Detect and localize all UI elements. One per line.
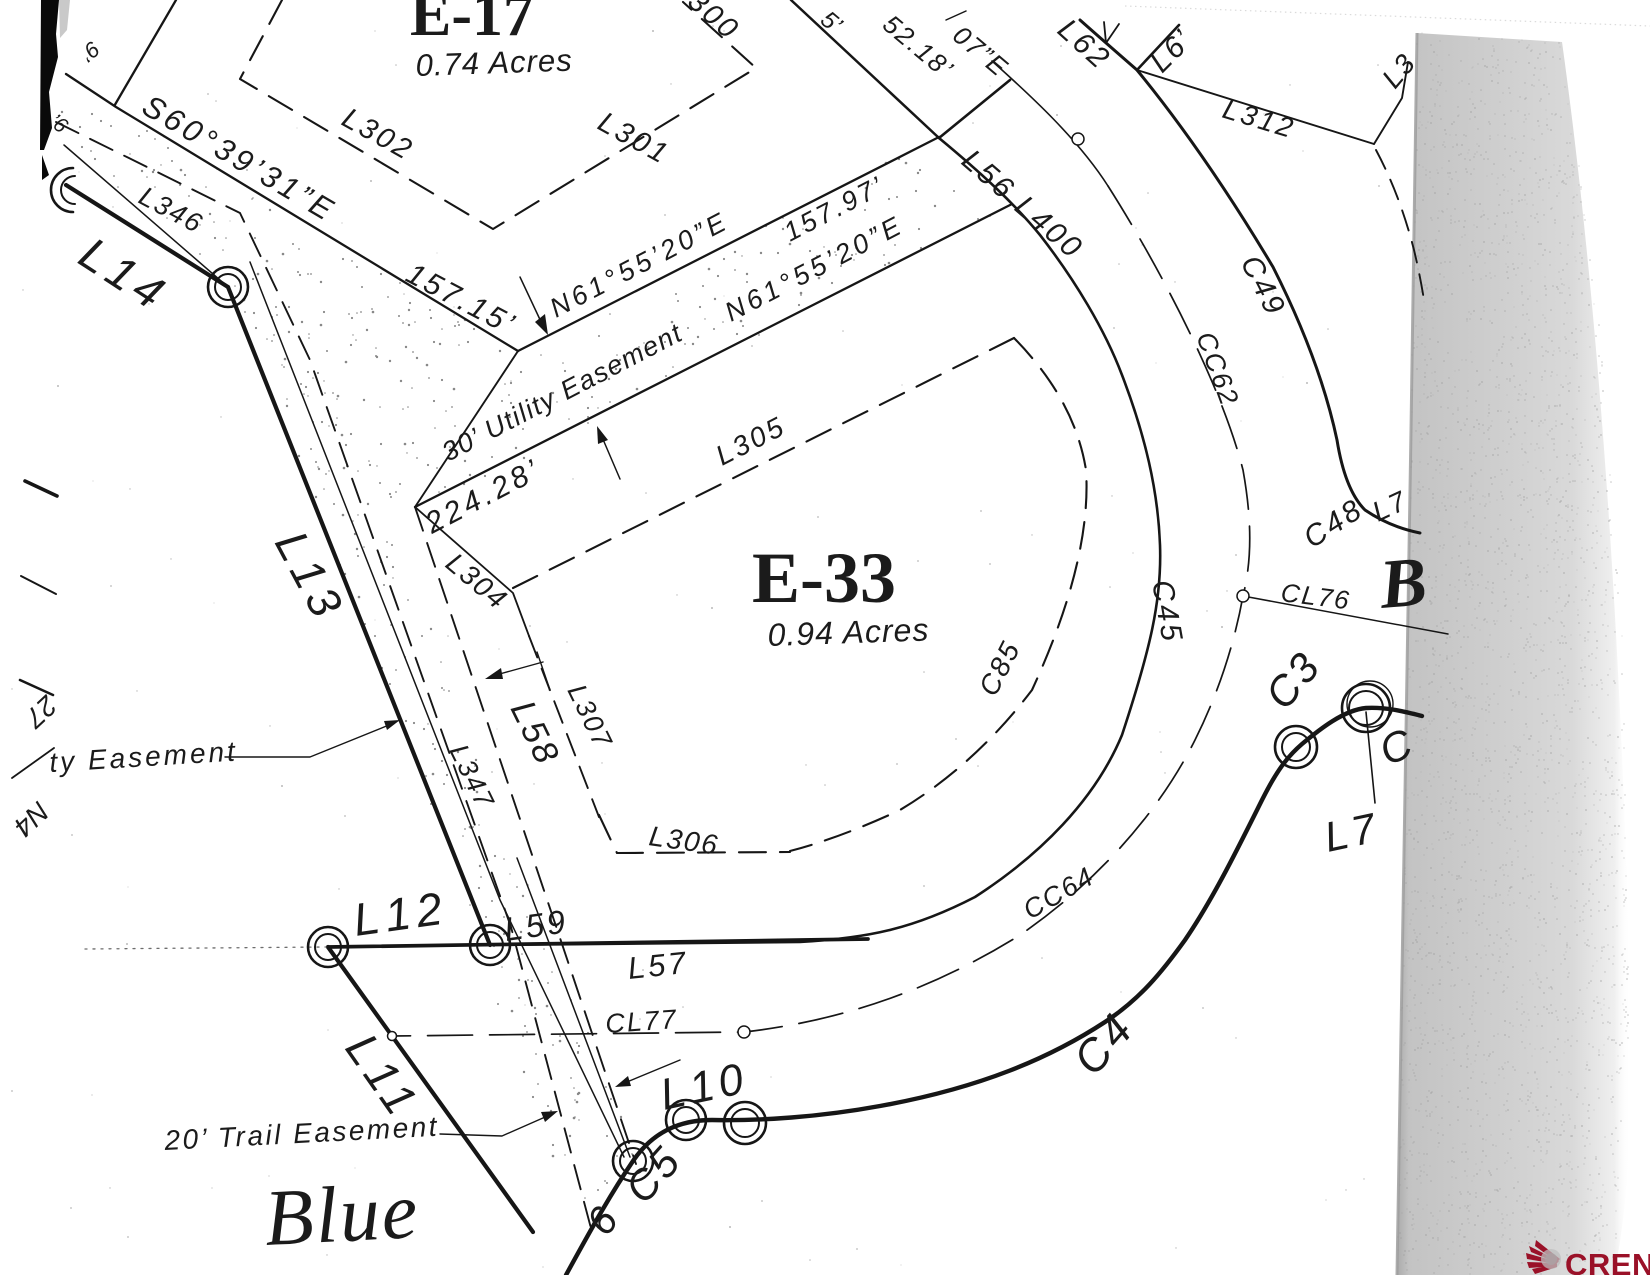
svg-text:L306: L306	[647, 820, 721, 860]
svg-text:CC64: CC64	[1018, 861, 1100, 925]
svg-text:300: 300	[681, 0, 745, 47]
svg-text:224.28’: 224.28’	[419, 453, 547, 541]
svg-text:L7: L7	[1320, 803, 1383, 860]
svg-text:L312: L312	[1219, 93, 1299, 144]
svg-text:27: 27	[18, 689, 64, 735]
svg-text:157.15’: 157.15’	[401, 257, 522, 342]
svg-text:0.94 Acres: 0.94 Acres	[767, 611, 930, 653]
svg-text:30’ Utility Easement: 30’ Utility Easement	[437, 317, 688, 467]
svg-text:C85: C85	[973, 636, 1027, 701]
svg-text:N4: N4	[8, 796, 55, 843]
svg-text:C4: C4	[1063, 1002, 1144, 1085]
svg-text:9’: 9’	[75, 36, 105, 67]
svg-text:C3: C3	[1256, 642, 1330, 718]
svg-text:L346: L346	[134, 181, 208, 239]
svg-text:CC62: CC62	[1190, 328, 1245, 411]
svg-text:B: B	[1376, 543, 1430, 624]
svg-text:ty Easement: ty Easement	[48, 736, 238, 778]
svg-text:L304: L304	[440, 547, 514, 616]
svg-text:E-33: E-33	[752, 538, 896, 618]
svg-text:CREN: CREN	[1565, 1247, 1650, 1275]
svg-text:0.74 Acres: 0.74 Acres	[415, 43, 573, 83]
svg-text:20’ Trail Easement: 20’ Trail Easement	[163, 1111, 440, 1156]
svg-text:L57: L57	[626, 945, 690, 986]
svg-text:E-17: E-17	[410, 0, 534, 49]
svg-text:5’: 5’	[815, 6, 847, 39]
svg-text:CL76: CL76	[1279, 577, 1352, 615]
svg-text:L58: L58	[503, 694, 568, 772]
svg-text:L305: L305	[711, 410, 791, 471]
svg-text:L302: L302	[337, 102, 419, 167]
svg-text:CL77: CL77	[604, 1004, 678, 1039]
svg-text:Blue: Blue	[262, 1167, 421, 1263]
svg-text:L56 L400: L56 L400	[955, 143, 1089, 266]
svg-text:N61°55’20”E: N61°55’20”E	[545, 206, 734, 324]
svg-text:L6’: L6’	[1144, 23, 1200, 79]
svg-text:L12: L12	[350, 881, 451, 946]
svg-text:L7: L7	[1367, 484, 1412, 527]
svg-text:07”E: 07”E	[947, 20, 1014, 83]
svg-text:L14: L14	[71, 227, 179, 322]
svg-text:L62: L62	[1051, 13, 1117, 77]
